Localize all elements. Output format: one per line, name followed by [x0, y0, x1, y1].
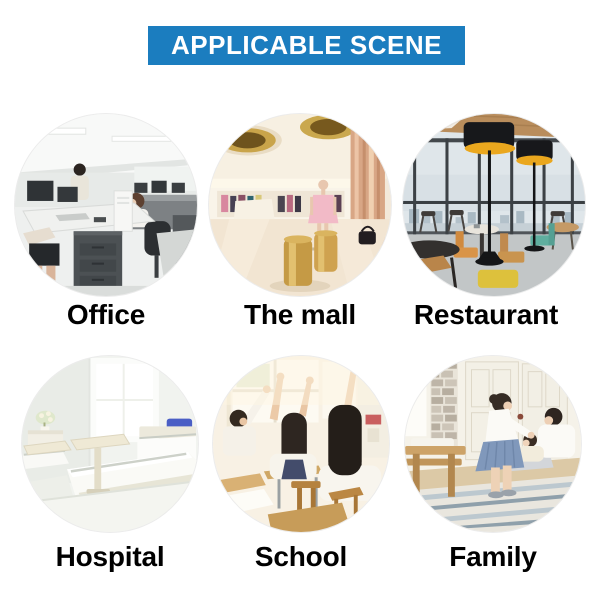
family-living-room-photo [405, 356, 581, 532]
classroom-photo [213, 356, 389, 532]
page-title-banner: APPLICABLE SCENE [148, 26, 465, 65]
scene-circle-hospital [22, 356, 198, 532]
scene-circle-family [405, 356, 581, 532]
scene-label-hospital: Hospital [10, 541, 210, 573]
scene-circle-mall [209, 114, 391, 296]
scene-label-mall: The mall [199, 299, 401, 331]
scene-circle-restaurant [403, 114, 585, 296]
scene-label-restaurant: Restaurant [385, 299, 587, 331]
scene-circle-school [213, 356, 389, 532]
restaurant-interior-photo [403, 114, 585, 296]
hospital-ward-photo [22, 356, 198, 532]
scene-circle-office [15, 114, 197, 296]
page-title: APPLICABLE SCENE [171, 30, 442, 61]
shopping-mall-photo [209, 114, 391, 296]
scene-label-family: Family [393, 541, 593, 573]
office-photo [15, 114, 197, 296]
scene-label-school: School [201, 541, 401, 573]
scene-label-office: Office [5, 299, 207, 331]
